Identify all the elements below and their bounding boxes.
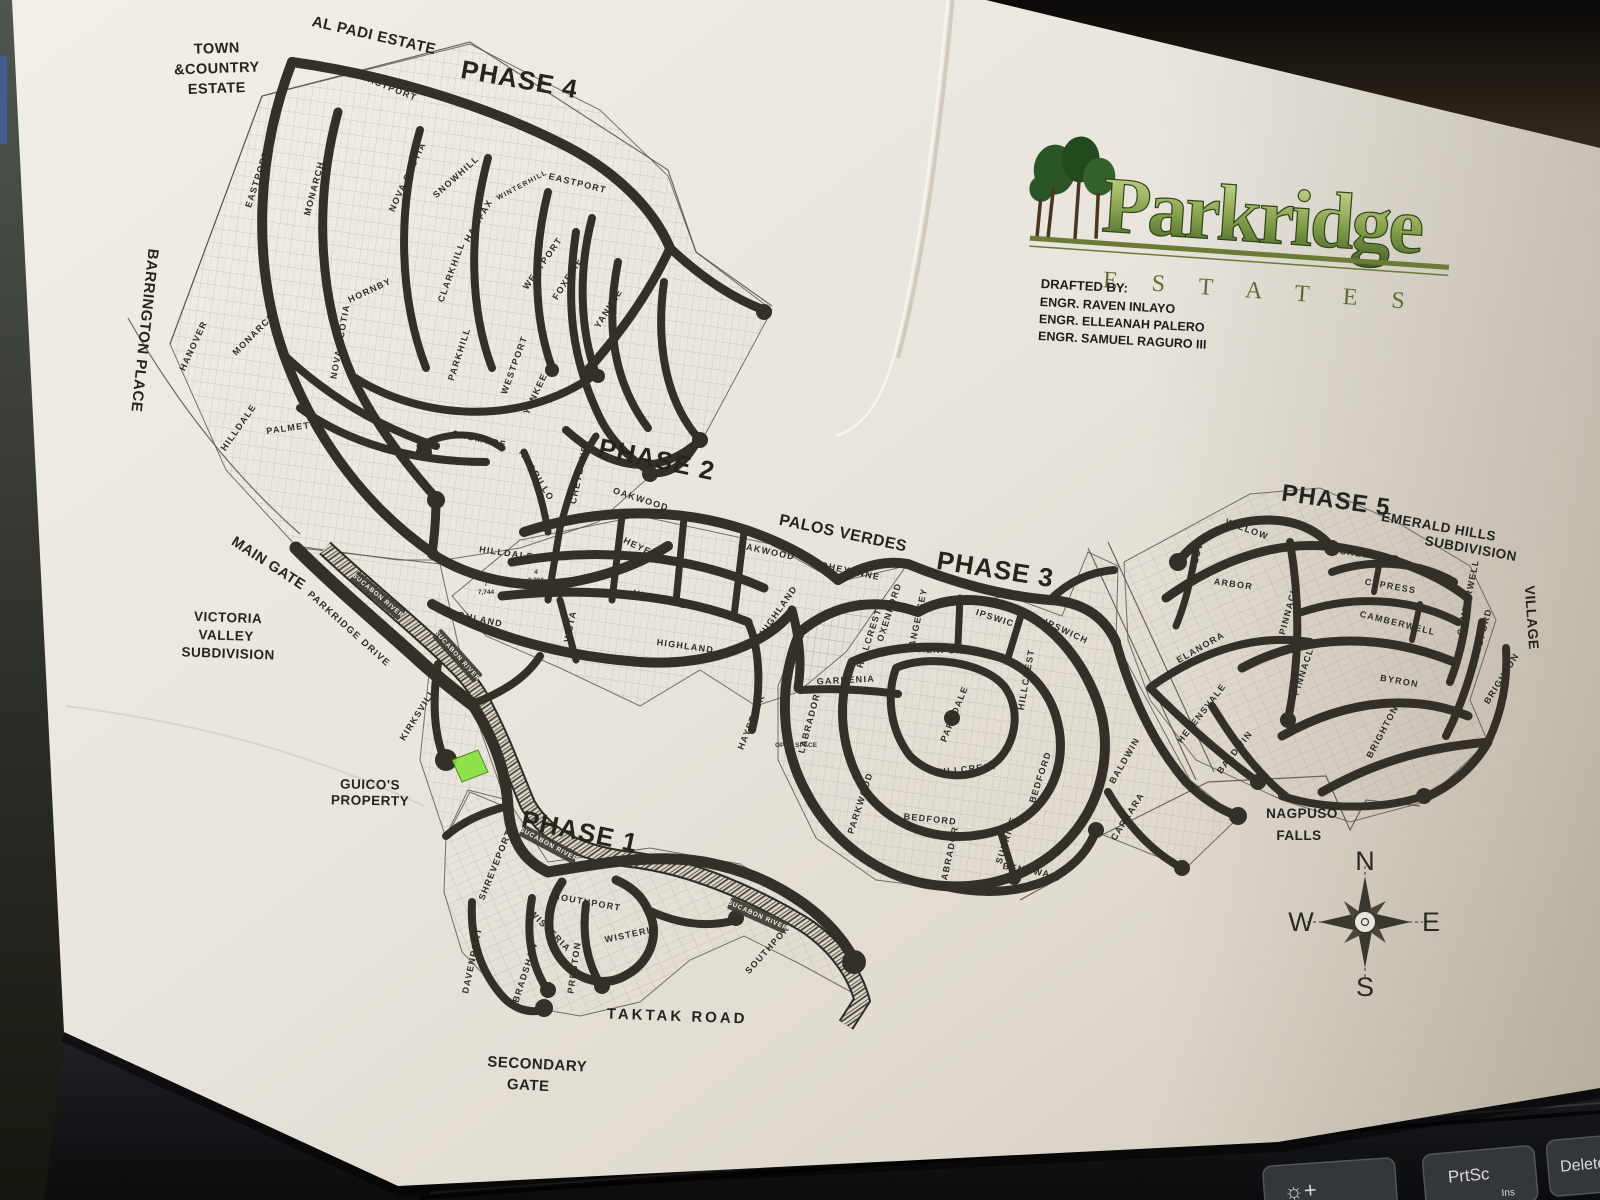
place-label: &COUNTRY — [174, 60, 260, 79]
place-label: GUICO'S — [340, 776, 400, 792]
tiny-label: 7 — [484, 581, 488, 588]
tiny-label: 4 — [534, 569, 538, 576]
compass-n-label: N — [1355, 846, 1375, 876]
prtsc-key-sub-label: Ins — [1501, 1187, 1515, 1199]
compass-w-label: W — [1288, 907, 1314, 937]
compass-e-label: E — [1422, 907, 1440, 937]
place-label: VICTORIA — [194, 609, 263, 626]
tiny-label: OPEN SPACE — [775, 742, 818, 749]
tiny-label: 7,744 — [478, 589, 495, 596]
delete-key-label: Delete — [1559, 1155, 1600, 1176]
photo-of-subdivision-map: AL PADI ESTATETOWN&COUNTRYESTATEBARRINGT… — [0, 0, 1600, 1200]
place-label: VALLEY — [198, 627, 254, 644]
prtsc-key-label: PrtSc — [1447, 1164, 1491, 1187]
place-label: ESTATE — [188, 80, 247, 98]
tiny-label: 2,266 — [528, 577, 545, 584]
street-label: OXENFORD — [910, 644, 972, 656]
place-label: TOWN — [194, 40, 241, 58]
compass-s-label: S — [1356, 972, 1374, 1002]
place-label: GATE — [507, 1076, 550, 1095]
place-label: FALLS — [1276, 828, 1321, 843]
place-label: NAGPUSO — [1266, 806, 1338, 821]
place-label: PROPERTY — [331, 792, 410, 808]
monitor-blue-sliver — [0, 56, 7, 144]
brightness-key-icon: ☼+ — [1283, 1177, 1318, 1200]
